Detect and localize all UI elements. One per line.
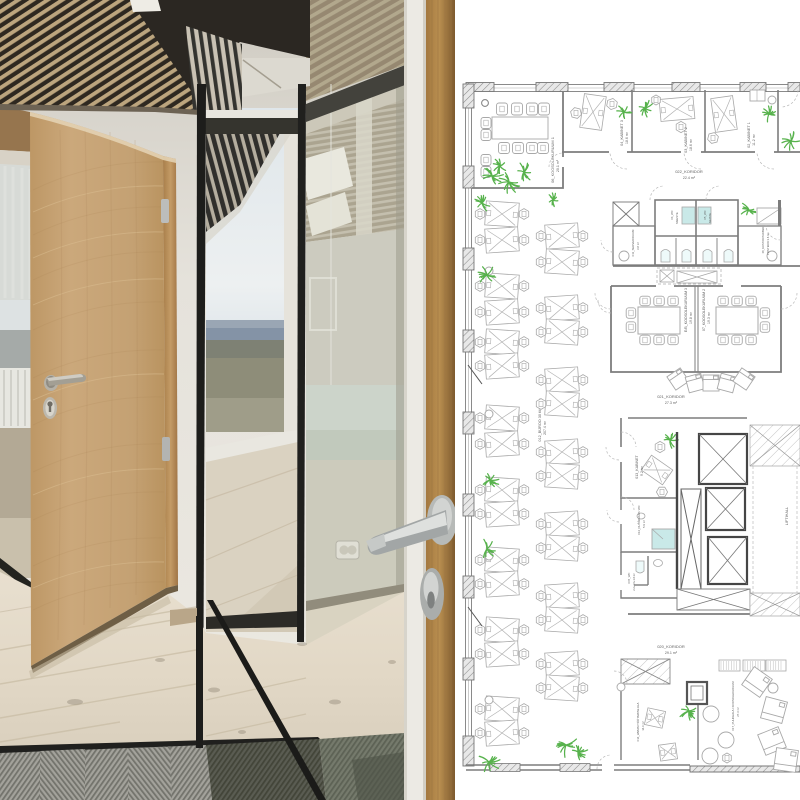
svg-text:011_SERVERIRUUM: 011_SERVERIRUUM [631,229,635,256]
svg-text:11.2 m²: 11.2 m² [752,133,756,145]
svg-text:18.6 m²: 18.6 m² [625,131,629,144]
svg-text:NEISTE: NEISTE [708,213,712,223]
svg-text:2.2+1.5+1.6 m²: 2.2+1.5+1.6 m² [632,573,636,591]
svg-text:016_VABAM TÖÖTAMISE ALA: 016_VABAM TÖÖTAMISE ALA [636,703,640,742]
svg-text:MEESTE: MEESTE [675,212,679,224]
svg-text:LIFTIHALL: LIFTIHALL [785,507,789,525]
svg-text:05_WC: 05_WC [703,210,707,219]
svg-text:207.4 m²: 207.4 m² [543,420,547,435]
svg-text:9.2 m²: 9.2 m² [640,465,644,476]
svg-text:20.1 m²: 20.1 m² [556,159,560,172]
svg-text:015_WC: 015_WC [627,573,631,584]
svg-text:017_PUHKEALA / KOOSOLEKURUUM: 017_PUHKEALA / KOOSOLEKURUUM [731,681,735,731]
svg-text:021_KORIDOR: 021_KORIDOR [657,394,685,399]
svg-text:5.9 m²: 5.9 m² [642,520,646,528]
svg-text:22.4 m²: 22.4 m² [683,176,696,180]
svg-text:04_KABINET 3: 04_KABINET 3 [620,120,624,146]
svg-text:02_KABINET 1: 02_KABINET 1 [747,122,751,148]
svg-text:3.8 m²: 3.8 m² [636,242,640,250]
svg-text:27.3 m²: 27.3 m² [736,707,740,717]
svg-text:06_WC: 06_WC [670,210,674,219]
svg-text:19.3 m²: 19.3 m² [707,311,711,324]
svg-text:14.6 m²: 14.6 m² [641,721,645,731]
svg-text:022_KORIDOR: 022_KORIDOR [675,169,703,174]
svg-text:27.3 m²: 27.3 m² [665,401,678,405]
svg-text:06_KOOSOLEKURUUM 1: 06_KOOSOLEKURUUM 1 [550,137,555,183]
svg-text:07_KOOSOLEKURUUM 2: 07_KOOSOLEKURUUM 2 [702,289,706,331]
svg-text:29.1 m²: 29.1 m² [665,651,678,655]
svg-text:03_KABINET 2: 03_KABINET 2 [684,127,688,153]
svg-text:020_KORIDOR: 020_KORIDOR [657,644,685,649]
svg-text:E/B_KOOSOLEKURUUM 3: E/B_KOOSOLEKURUUM 3 [684,288,688,332]
svg-text:19.8 m²: 19.8 m² [689,311,693,324]
svg-text:013_KABINET: 013_KABINET [635,455,639,479]
svg-text:PRINTERID 3.6 m²: PRINTERID 3.6 m² [766,233,770,255]
svg-text:18.6 m²: 18.6 m² [689,138,693,151]
svg-text:06_KONTORITARBED: 06_KONTORITARBED [761,227,765,254]
svg-text:014_DUŠŠRUUM / WC: 014_DUŠŠRUUM / WC [636,505,641,534]
